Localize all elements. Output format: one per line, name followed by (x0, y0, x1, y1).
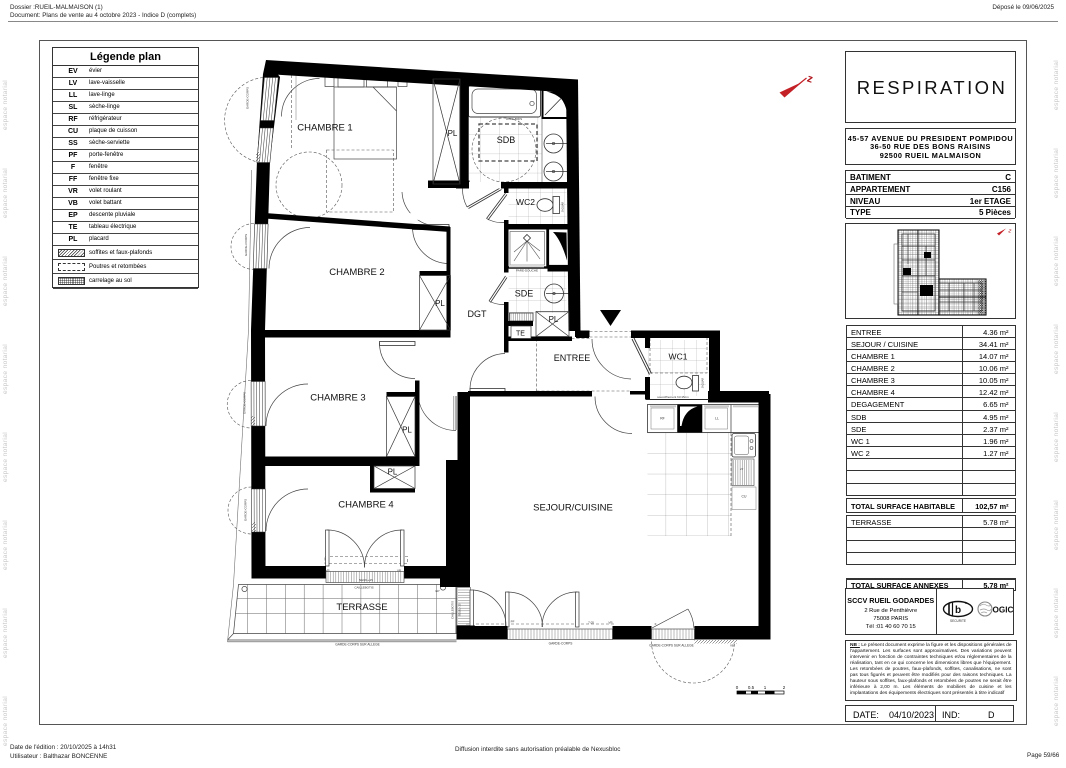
svg-text:0: 0 (736, 685, 739, 690)
svg-text:CHAMBRE 4: CHAMBRE 4 (338, 500, 393, 511)
svg-text:TE: TE (516, 331, 525, 338)
svg-text:7.05: 7.05 (588, 621, 594, 625)
svg-text:WC1: WC1 (669, 352, 688, 362)
svg-text:PF: PF (511, 620, 515, 624)
svg-text:ENTREE: ENTREE (554, 353, 591, 363)
svg-text:SDE: SDE (515, 289, 534, 299)
svg-text:PL: PL (435, 299, 445, 308)
svg-text:GARDE-CORPS SUR ALLEGE: GARDE-CORPS SUR ALLEGE (649, 644, 693, 648)
svg-text:SEUIL+15: SEUIL+15 (359, 578, 373, 582)
svg-text:TERRASSE: TERRASSE (336, 602, 387, 613)
svg-text:PL: PL (402, 426, 412, 435)
svg-text:SECURITE: SECURITE (950, 619, 966, 623)
svg-text:CAILLEBOTIS: CAILLEBOTIS (354, 586, 373, 590)
svg-text:JAQUAR: JAQUAR (701, 378, 705, 389)
svg-text:WC2: WC2 (516, 197, 535, 207)
svg-text:F: F (655, 622, 657, 626)
svg-text:CHAMBRE 2: CHAMBRE 2 (329, 267, 384, 278)
svg-text:1: 1 (764, 685, 767, 690)
svg-text:CAILLEBOTIS: CAILLEBOTIS (451, 601, 455, 619)
svg-text:PARE-DOUCHE: PARE-DOUCHE (516, 269, 538, 273)
svg-text:b: b (955, 605, 961, 616)
svg-text:LV: LV (740, 467, 743, 471)
svg-text:DGT: DGT (468, 309, 488, 319)
svg-text:2: 2 (783, 685, 786, 690)
svg-text:GARDE-CORPS: GARDE-CORPS (246, 87, 250, 109)
svg-text:CU: CU (742, 495, 747, 499)
svg-text:PL: PL (388, 468, 398, 477)
svg-text:SDB: SDB (497, 135, 516, 145)
svg-text:EP: EP (435, 589, 439, 593)
svg-text:GARDE-CORPS: GARDE-CORPS (244, 499, 248, 521)
svg-text:GARDE-CORPS: GARDE-CORPS (549, 642, 573, 646)
svg-text:soucoffrement ht=15cm: soucoffrement ht=15cm (657, 395, 689, 399)
svg-text:GARDE-CORPS: GARDE-CORPS (244, 234, 248, 256)
svg-text:z: z (805, 73, 814, 86)
svg-text:OGIC: OGIC (993, 606, 1014, 615)
svg-text:CHAMBRE 1: CHAMBRE 1 (297, 123, 352, 134)
svg-text:¹: ¹ (965, 601, 967, 607)
svg-text:z: z (1007, 228, 1012, 235)
svg-text:SEJOUR/CUISINE: SEJOUR/CUISINE (533, 503, 613, 514)
svg-text:CHAMBRE 3: CHAMBRE 3 (310, 393, 365, 404)
svg-text:JOUE-BOIS: JOUE-BOIS (506, 117, 522, 121)
svg-text:GARDE-CORPS SUR ALLEGE: GARDE-CORPS SUR ALLEGE (335, 643, 379, 647)
svg-text:LL: LL (715, 417, 719, 421)
svg-text:JAQUAR: JAQUAR (561, 202, 565, 213)
svg-text:RF: RF (660, 417, 665, 421)
svg-text:PL: PL (448, 129, 458, 138)
svg-text:SEUIL+15: SEUIL+15 (458, 603, 462, 616)
svg-text:0.5: 0.5 (748, 685, 755, 690)
svg-text:VB: VB (730, 644, 734, 648)
svg-text:PL: PL (549, 315, 559, 324)
svg-text:GARDE-CORPS: GARDE-CORPS (243, 392, 247, 414)
